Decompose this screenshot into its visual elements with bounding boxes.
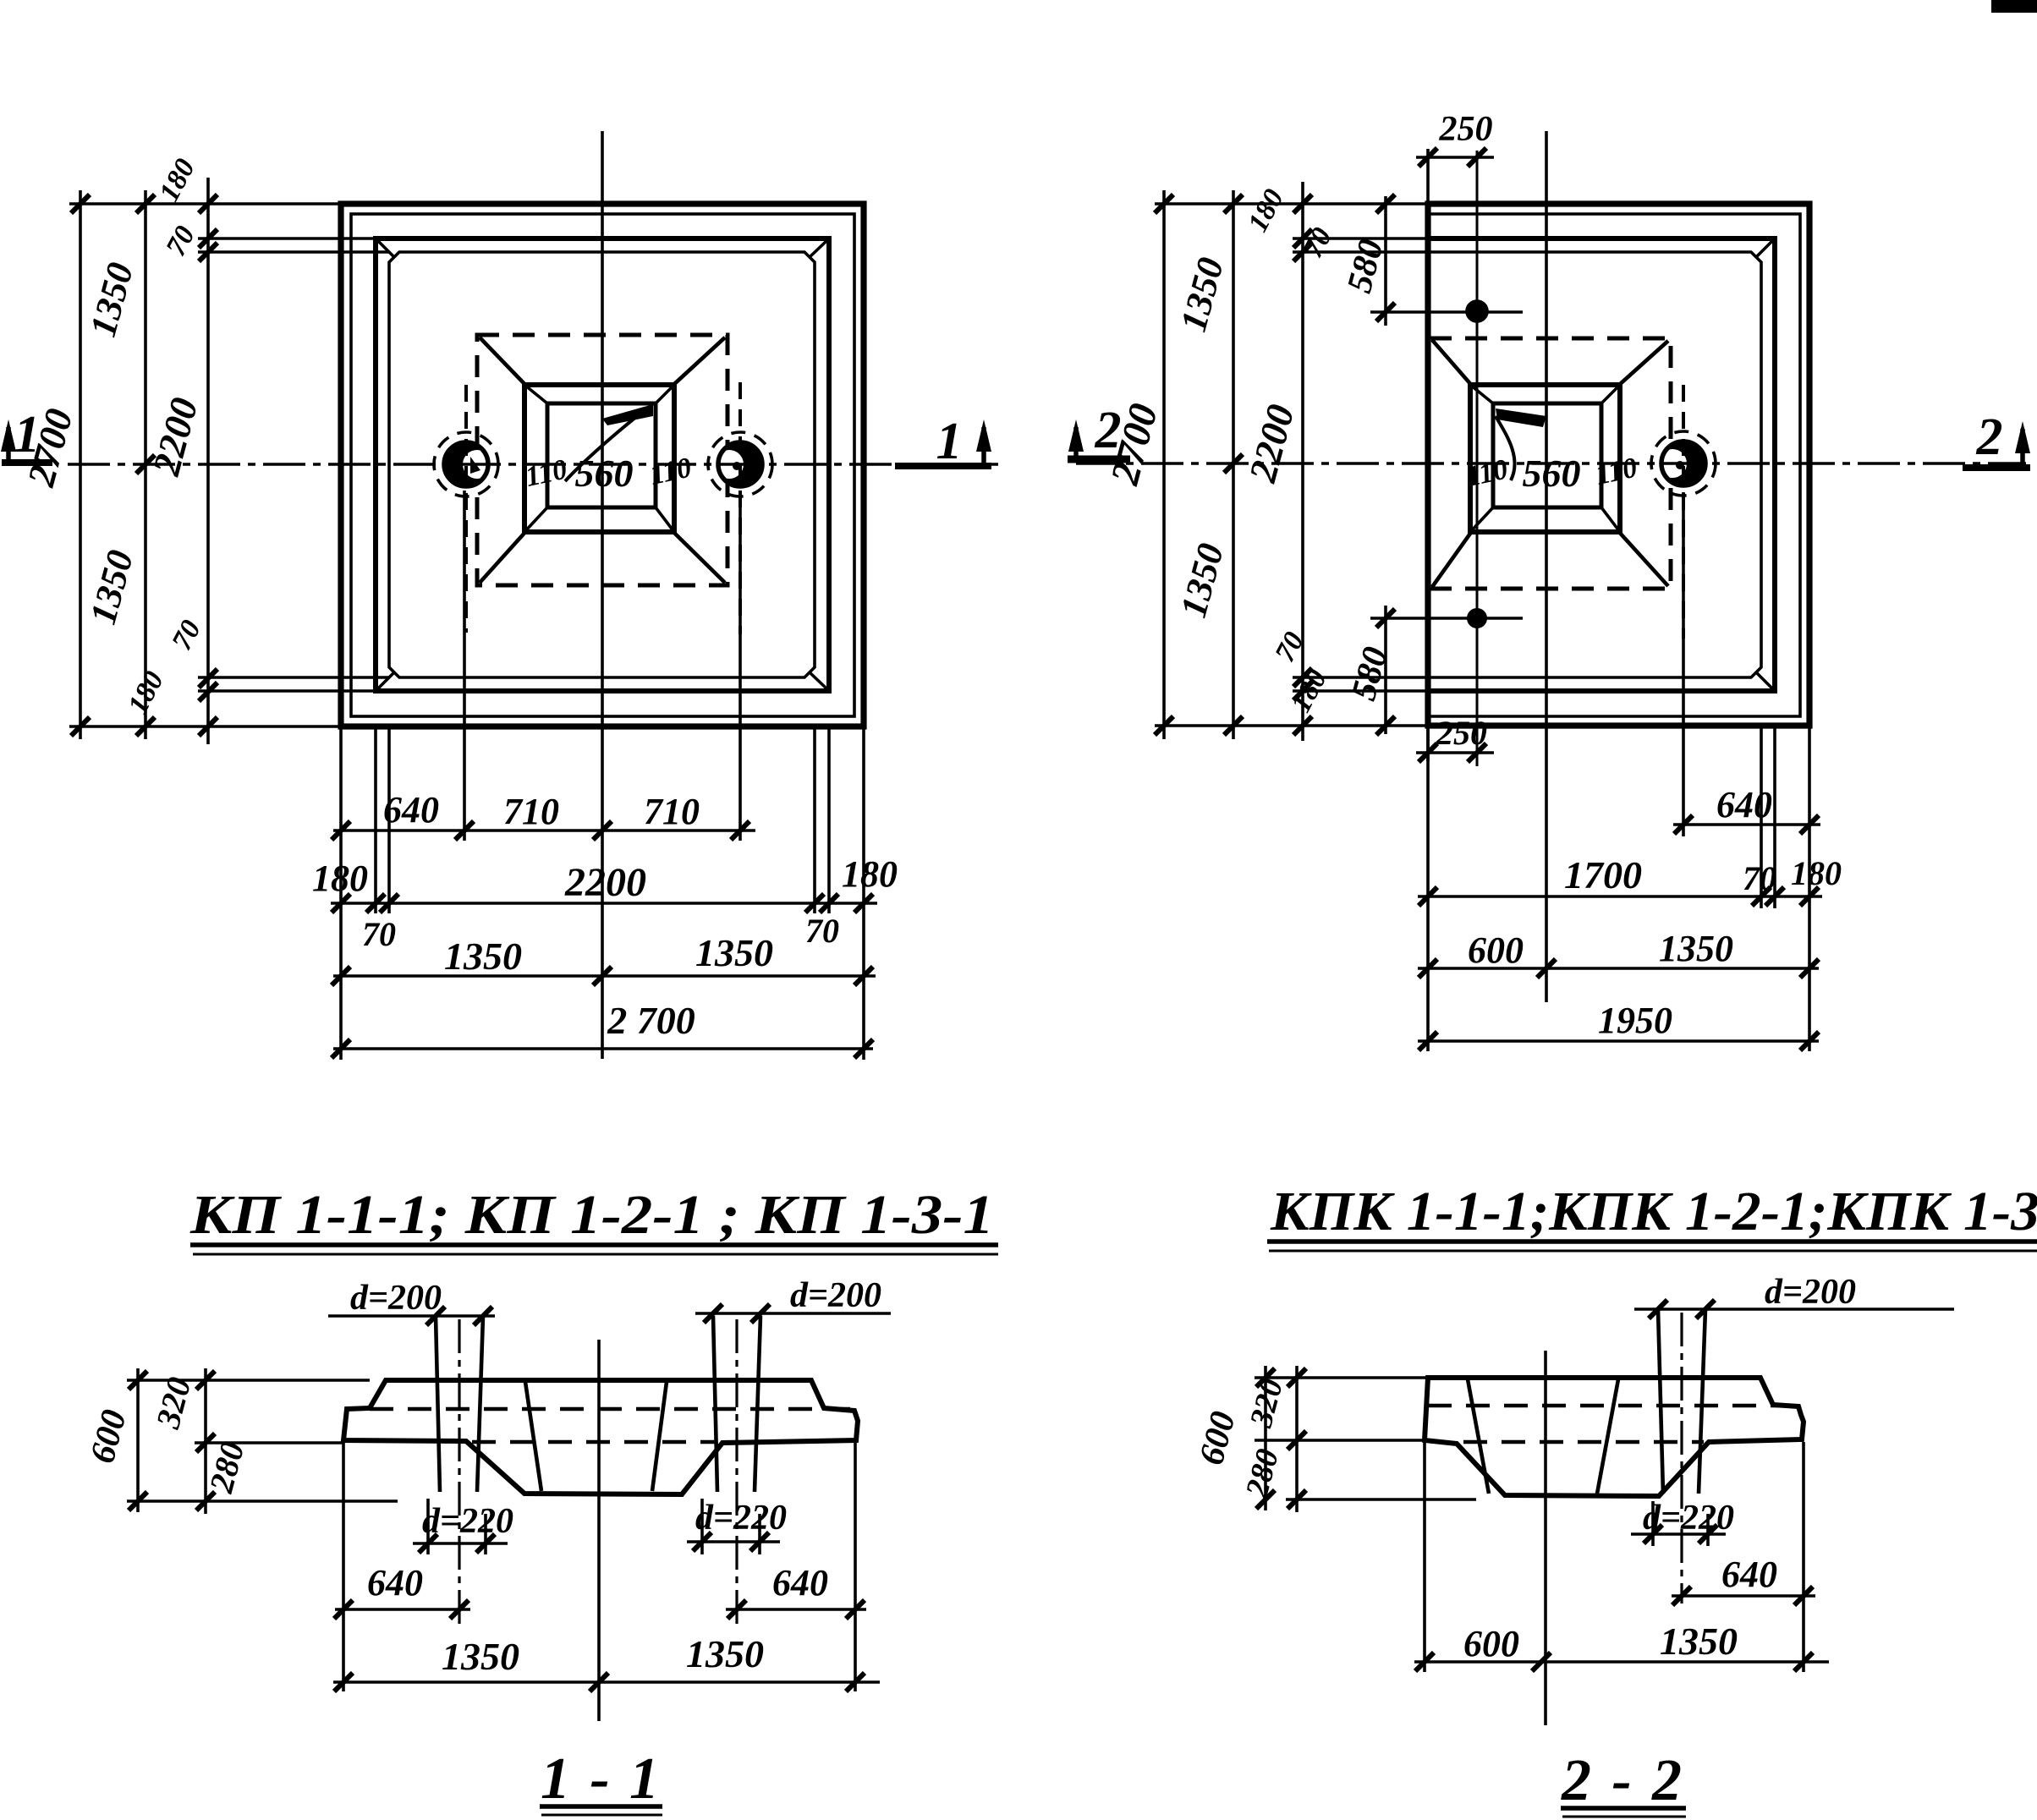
svg-text:1350: 1350 xyxy=(442,1635,519,1678)
svg-text:1700: 1700 xyxy=(1564,853,1642,896)
svg-text:КП 1-1-1; КП 1-2-1 ; КП 1-3-1: КП 1-1-1; КП 1-2-1 ; КП 1-3-1 xyxy=(189,1184,994,1246)
svg-text:560: 560 xyxy=(575,452,634,495)
svg-text:2: 2 xyxy=(1976,408,2003,466)
svg-text:710: 710 xyxy=(503,791,559,832)
svg-text:1-1: 1-1 xyxy=(541,1746,659,1812)
svg-text:250: 250 xyxy=(1439,110,1493,149)
svg-text:70: 70 xyxy=(1743,859,1776,897)
svg-text:70: 70 xyxy=(362,915,396,953)
svg-text:1350: 1350 xyxy=(686,1632,764,1675)
svg-text:560: 560 xyxy=(1523,452,1581,495)
svg-text:d=200: d=200 xyxy=(1765,1273,1856,1312)
svg-text:180: 180 xyxy=(1791,854,1842,892)
svg-text:d=200: d=200 xyxy=(790,1276,881,1315)
svg-text:1350: 1350 xyxy=(444,935,522,978)
svg-text:d=220: d=220 xyxy=(1643,1499,1734,1538)
svg-text:640: 640 xyxy=(367,1562,423,1603)
svg-text:250: 250 xyxy=(1436,714,1487,752)
svg-text:1950: 1950 xyxy=(1598,1000,1672,1041)
svg-text:1350: 1350 xyxy=(695,931,773,974)
svg-text:710: 710 xyxy=(644,791,700,832)
svg-text:2-2: 2-2 xyxy=(1561,1748,1682,1813)
svg-text:640: 640 xyxy=(383,789,439,831)
svg-text:1: 1 xyxy=(936,413,963,470)
svg-text:640: 640 xyxy=(1721,1554,1777,1595)
svg-text:d=200: d=200 xyxy=(350,1279,442,1318)
svg-text:70: 70 xyxy=(805,912,839,950)
svg-text:d=220: d=220 xyxy=(695,1499,787,1538)
svg-text:2200: 2200 xyxy=(564,860,646,905)
svg-text:600: 600 xyxy=(1468,929,1524,971)
svg-text:600: 600 xyxy=(1463,1623,1519,1664)
svg-text:640: 640 xyxy=(772,1562,828,1603)
svg-text:1350: 1350 xyxy=(1659,928,1733,969)
svg-text:180: 180 xyxy=(842,853,898,895)
svg-text:1350: 1350 xyxy=(1660,1620,1738,1663)
svg-text:d=220: d=220 xyxy=(422,1502,513,1541)
svg-text:2 700: 2 700 xyxy=(607,999,695,1042)
svg-text:640: 640 xyxy=(1716,784,1772,825)
svg-text:КПК 1-1-1;КПК 1-2-1;КПК 1-3-1: КПК 1-1-1;КПК 1-2-1;КПК 1-3-1 xyxy=(1270,1181,2037,1242)
svg-text:180: 180 xyxy=(312,858,368,899)
